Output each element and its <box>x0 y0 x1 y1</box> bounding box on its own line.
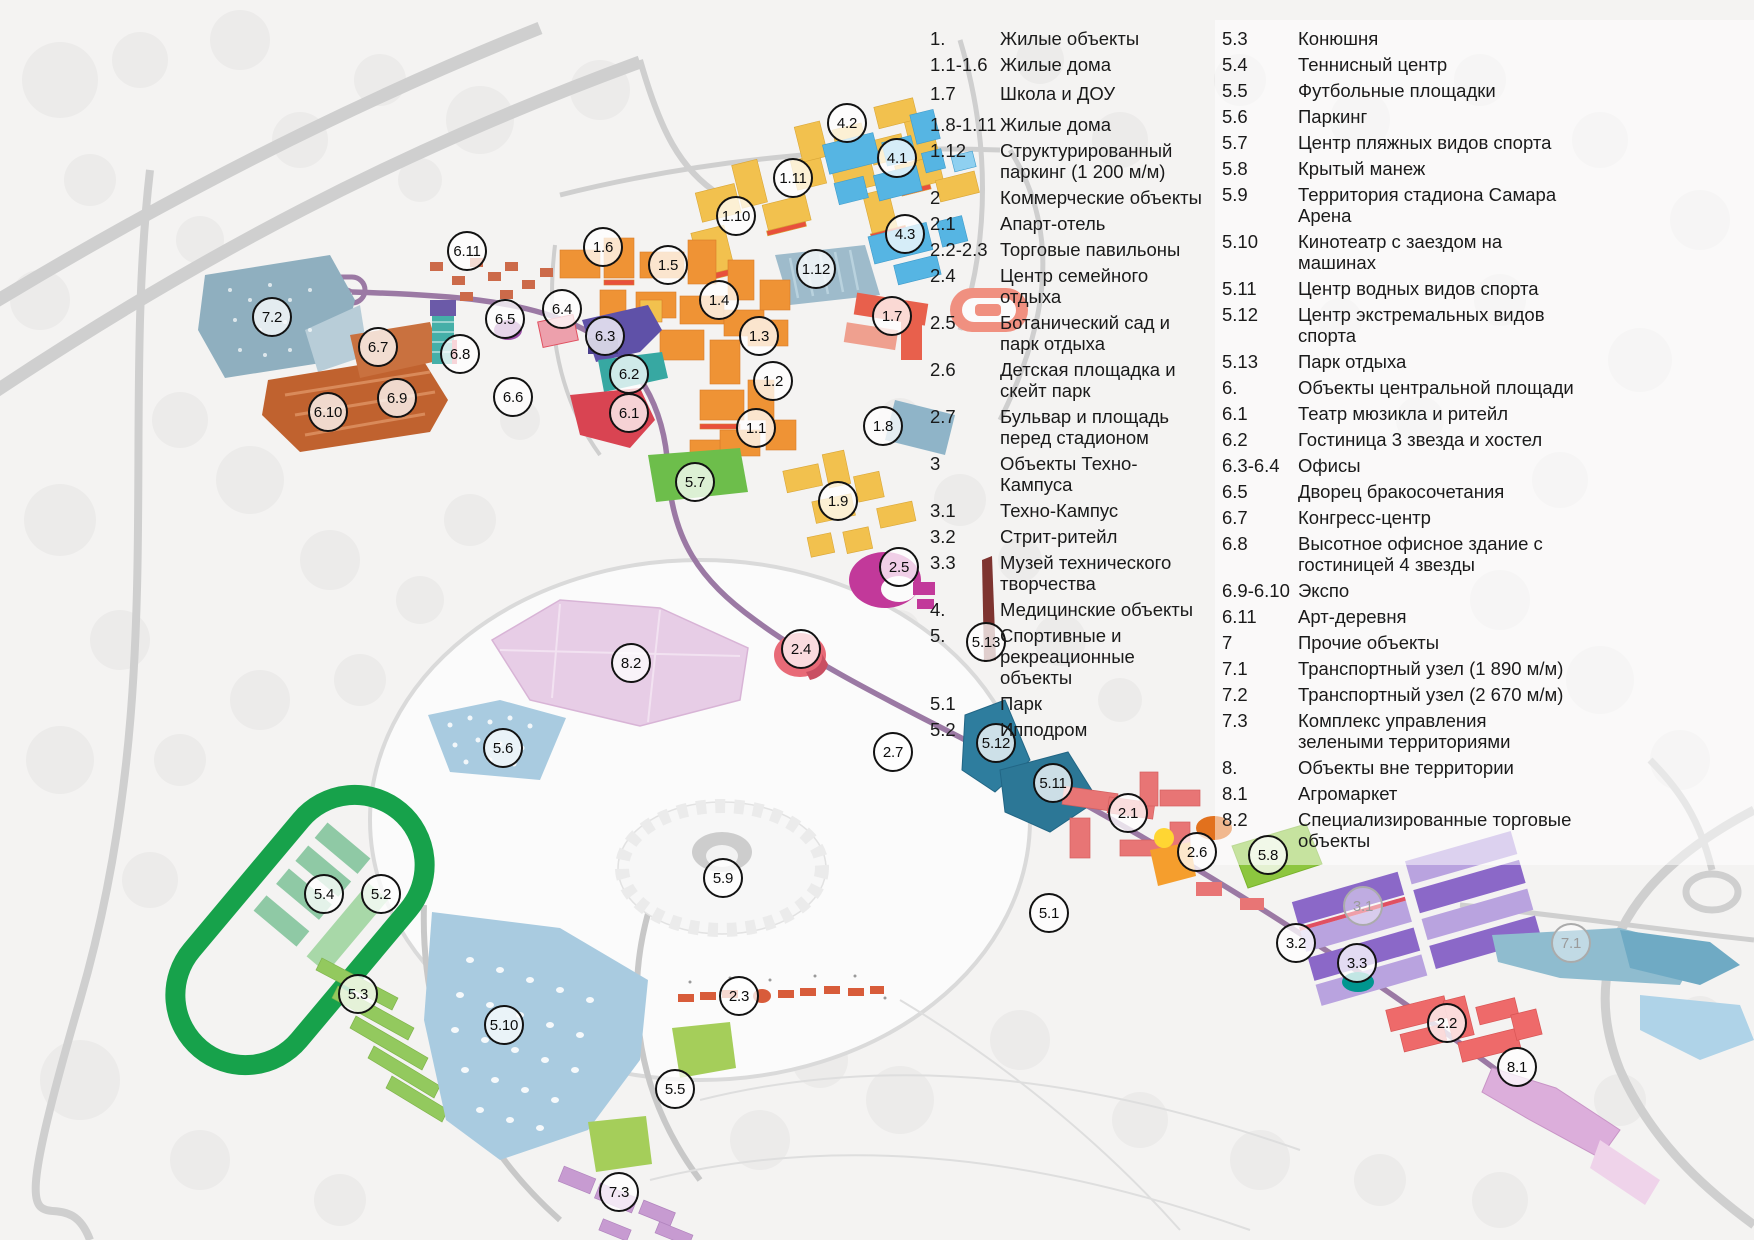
legend-row: 6.11Арт-деревня <box>1222 606 1582 627</box>
legend-number: 2.6 <box>930 359 1000 401</box>
legend-number: 1. <box>930 28 1000 49</box>
legend-label: Экспо <box>1298 580 1576 601</box>
map-marker-5.2[interactable]: 5.2 <box>361 874 401 914</box>
map-marker-1.7[interactable]: 1.7 <box>872 296 912 336</box>
legend-number: 5.11 <box>1222 278 1298 299</box>
legend-row: 6.9-6.10Экспо <box>1222 580 1582 601</box>
legend-row: 5.13Парк отдыха <box>1222 351 1582 372</box>
legend-number: 6.5 <box>1222 481 1298 502</box>
legend-number: 6.8 <box>1222 533 1298 575</box>
map-marker-1.8[interactable]: 1.8 <box>863 406 903 446</box>
map-marker-5.6[interactable]: 5.6 <box>483 728 523 768</box>
masterplan-page: 4.24.11.111.104.31.66.111.51.121.46.47.2… <box>0 0 1754 1240</box>
legend-label: Жилые дома <box>1000 54 1204 75</box>
legend-number: 7.3 <box>1222 710 1298 752</box>
map-marker-1.11[interactable]: 1.11 <box>773 158 813 198</box>
legend-number: 2.1 <box>930 213 1000 234</box>
map-marker-2.6[interactable]: 2.6 <box>1177 832 1217 872</box>
legend-number: 5.12 <box>1222 304 1298 346</box>
legend-number: 5.13 <box>1222 351 1298 372</box>
legend-row: 5.2Ипподром <box>930 719 1210 740</box>
map-marker-5.4[interactable]: 5.4 <box>304 874 344 914</box>
legend-row: 5.11Центр водных видов спорта <box>1222 278 1582 299</box>
legend-row: 2.4Центр семейного отдыха <box>930 265 1210 307</box>
legend-number: 5.10 <box>1222 231 1298 273</box>
legend-row: 6.2Гостиница 3 звезда и хостел <box>1222 429 1582 450</box>
legend-label: Школа и ДОУ <box>1000 83 1204 104</box>
legend-label: Прочие объекты <box>1298 632 1576 653</box>
legend-number: 5.1 <box>930 693 1000 714</box>
legend-label: Коммерческие объекты <box>1000 187 1204 208</box>
map-marker-1.6[interactable]: 1.6 <box>583 227 623 267</box>
legend-row: 1.8-1.11Жилые дома <box>930 114 1210 135</box>
legend-row: 1.7Школа и ДОУ <box>930 83 1210 104</box>
legend-label: Торговые павильоны <box>1000 239 1204 260</box>
map-marker-1.4[interactable]: 1.4 <box>699 280 739 320</box>
legend-label: Медицинские объекты <box>1000 599 1204 620</box>
legend-row: 6.3-6.4Офисы <box>1222 455 1582 476</box>
legend-row: 5.12Центр экстремальных видов спорта <box>1222 304 1582 346</box>
map-marker-2.3[interactable]: 2.3 <box>719 976 759 1016</box>
legend-row: 7.2Транспортный узел (2 670 м/м) <box>1222 684 1582 705</box>
map-marker-2.5[interactable]: 2.5 <box>879 547 919 587</box>
legend-row: 5.5Футбольные площадки <box>1222 80 1582 101</box>
legend-label: Транспортный узел (1 890 м/м) <box>1298 658 1576 679</box>
legend-row: 2.5Ботанический сад и парк отдыха <box>930 312 1210 354</box>
legend-row: 2.1Апарт-отель <box>930 213 1210 234</box>
map-marker-2.2[interactable]: 2.2 <box>1427 1003 1467 1043</box>
legend-label: Детская площадка и скейт парк <box>1000 359 1204 401</box>
legend-number: 5.2 <box>930 719 1000 740</box>
map-marker-6.7[interactable]: 6.7 <box>358 327 398 367</box>
legend-number: 2 <box>930 187 1000 208</box>
legend-label: Апарт-отель <box>1000 213 1204 234</box>
map-marker-1.5[interactable]: 1.5 <box>648 245 688 285</box>
legend-row: 6.Объекты центральной площади <box>1222 377 1582 398</box>
legend-label: Центр экстремальных видов спорта <box>1298 304 1576 346</box>
legend-row: 3.2Стрит-ритейл <box>930 526 1210 547</box>
map-marker-5.9[interactable]: 5.9 <box>703 858 743 898</box>
legend-label: Дворец бракосочетания <box>1298 481 1576 502</box>
legend-label: Кинотеатр с заездом на машинах <box>1298 231 1576 273</box>
map-marker-6.1[interactable]: 6.1 <box>609 393 649 433</box>
map-marker-8.1[interactable]: 8.1 <box>1497 1047 1537 1087</box>
legend-number: 7.1 <box>1222 658 1298 679</box>
legend-number: 8. <box>1222 757 1298 778</box>
legend-number: 1.7 <box>930 83 1000 104</box>
legend-number: 3.3 <box>930 552 1000 594</box>
legend-number: 5. <box>930 625 1000 688</box>
map-marker-3.2[interactable]: 3.2 <box>1276 923 1316 963</box>
legend-label: Теннисный центр <box>1298 54 1576 75</box>
map-marker-6.9[interactable]: 6.9 <box>377 378 417 418</box>
legend-row: 6.5Дворец бракосочетания <box>1222 481 1582 502</box>
legend-label: Конюшня <box>1298 28 1576 49</box>
legend-label: Паркинг <box>1298 106 1576 127</box>
map-marker-3.3[interactable]: 3.3 <box>1337 943 1377 983</box>
legend-number: 6.2 <box>1222 429 1298 450</box>
legend-number: 6.1 <box>1222 403 1298 424</box>
map-marker-7.2[interactable]: 7.2 <box>252 297 292 337</box>
legend-label: Парк <box>1000 693 1204 714</box>
map-marker-1.3[interactable]: 1.3 <box>739 316 779 356</box>
legend-row: 7.1Транспортный узел (1 890 м/м) <box>1222 658 1582 679</box>
legend-label: Офисы <box>1298 455 1576 476</box>
map-marker-6.4[interactable]: 6.4 <box>542 289 582 329</box>
map-marker-5.3[interactable]: 5.3 <box>338 974 378 1014</box>
map-marker-4.2[interactable]: 4.2 <box>827 103 867 143</box>
legend-number: 5.5 <box>1222 80 1298 101</box>
legend-number: 2.7 <box>930 406 1000 448</box>
legend-label: Жилые дома <box>1000 114 1204 135</box>
legend-number: 5.4 <box>1222 54 1298 75</box>
legend-label: Высотное офисное здание с гостиницей 4 з… <box>1298 533 1576 575</box>
legend-number: 6.7 <box>1222 507 1298 528</box>
legend-number: 6.11 <box>1222 606 1298 627</box>
legend-row: 8.2Специализированные торговые объекты <box>1222 809 1582 851</box>
legend-label: Комплекс управления зелеными территориям… <box>1298 710 1576 752</box>
legend-row: 5.7Центр пляжных видов спорта <box>1222 132 1582 153</box>
legend-number: 5.7 <box>1222 132 1298 153</box>
legend-row: 2.7Бульвар и площадь перед стадионом <box>930 406 1210 448</box>
legend-row: 6.1Театр мюзикла и ритейл <box>1222 403 1582 424</box>
legend-label: Парк отдыха <box>1298 351 1576 372</box>
legend-row: 5.3Конюшня <box>1222 28 1582 49</box>
legend-number: 1.8-1.11 <box>930 114 1000 135</box>
map-marker-2.7[interactable]: 2.7 <box>873 732 913 772</box>
map-marker-6.6[interactable]: 6.6 <box>493 377 533 417</box>
legend-label: Специализированные торговые объекты <box>1298 809 1576 851</box>
legend-number: 3.2 <box>930 526 1000 547</box>
map-marker-6.10[interactable]: 6.10 <box>308 392 348 432</box>
legend-row: 1.1-1.6Жилые дома <box>930 54 1210 75</box>
legend-row: 2Коммерческие объекты <box>930 187 1210 208</box>
legend-row: 5.1Парк <box>930 693 1210 714</box>
map-marker-6.8[interactable]: 6.8 <box>440 334 480 374</box>
map-marker-5.1[interactable]: 5.1 <box>1029 893 1069 933</box>
legend-row: 5.Спортивные и рекреационные объекты <box>930 625 1210 688</box>
legend-number: 5.3 <box>1222 28 1298 49</box>
legend-label: Транспортный узел (2 670 м/м) <box>1298 684 1576 705</box>
legend-row: 3.3Музей технического творчества <box>930 552 1210 594</box>
legend-label: Крытый манеж <box>1298 158 1576 179</box>
map-marker-5.7[interactable]: 5.7 <box>675 462 715 502</box>
map-marker-6.2[interactable]: 6.2 <box>609 354 649 394</box>
legend-number: 5.6 <box>1222 106 1298 127</box>
map-marker-6.5[interactable]: 6.5 <box>485 299 525 339</box>
legend-label: Центр семейного отдыха <box>1000 265 1204 307</box>
legend-number: 2.4 <box>930 265 1000 307</box>
legend-number: 5.9 <box>1222 184 1298 226</box>
map-marker-8.2[interactable]: 8.2 <box>611 643 651 683</box>
legend-label: Конгресс-центр <box>1298 507 1576 528</box>
map-marker-5.10[interactable]: 5.10 <box>484 1005 524 1045</box>
map-marker-2.1[interactable]: 2.1 <box>1108 793 1148 833</box>
legend-label: Объекты Техно-Кампуса <box>1000 453 1204 495</box>
legend-number: 2.5 <box>930 312 1000 354</box>
legend-row: 1.12Структурированный паркинг (1 200 м/м… <box>930 140 1210 182</box>
map-marker-7.1[interactable]: 7.1 <box>1551 923 1591 963</box>
legend-label: Арт-деревня <box>1298 606 1576 627</box>
legend-number: 3 <box>930 453 1000 495</box>
legend-row: 3Объекты Техно-Кампуса <box>930 453 1210 495</box>
legend-column-1: 1.Жилые объекты1.1-1.6Жилые дома1.7Школа… <box>930 28 1210 745</box>
legend-row: 5.10Кинотеатр с заездом на машинах <box>1222 231 1582 273</box>
legend-column-2: 5.3Конюшня5.4Теннисный центр5.5Футбольны… <box>1222 28 1582 856</box>
map-marker-4.3[interactable]: 4.3 <box>885 214 925 254</box>
legend-label: Структурированный паркинг (1 200 м/м) <box>1000 140 1204 182</box>
legend-row: 7.3Комплекс управления зелеными территор… <box>1222 710 1582 752</box>
legend-label: Ботанический сад и парк отдыха <box>1000 312 1204 354</box>
legend-label: Футбольные площадки <box>1298 80 1576 101</box>
map-marker-6.11[interactable]: 6.11 <box>447 231 487 271</box>
legend-number: 8.2 <box>1222 809 1298 851</box>
legend-number: 6.9-6.10 <box>1222 580 1298 601</box>
legend-number: 8.1 <box>1222 783 1298 804</box>
map-marker-1.1[interactable]: 1.1 <box>736 408 776 448</box>
legend-number: 1.1-1.6 <box>930 54 1000 75</box>
legend-row: 2.6Детская площадка и скейт парк <box>930 359 1210 401</box>
map-marker-3.1[interactable]: 3.1 <box>1343 886 1383 926</box>
map-marker-4.1[interactable]: 4.1 <box>877 138 917 178</box>
map-marker-1.9[interactable]: 1.9 <box>818 481 858 521</box>
map-marker-1.2[interactable]: 1.2 <box>753 361 793 401</box>
legend-row: 6.7Конгресс-центр <box>1222 507 1582 528</box>
legend-label: Музей технического творчества <box>1000 552 1204 594</box>
map-marker-5.5[interactable]: 5.5 <box>655 1069 695 1109</box>
map-marker-5.11[interactable]: 5.11 <box>1033 763 1073 803</box>
map-marker-1.10[interactable]: 1.10 <box>716 196 756 236</box>
legend-number: 7.2 <box>1222 684 1298 705</box>
legend-label: Агромаркет <box>1298 783 1576 804</box>
legend-row: 2.2-2.3Торговые павильоны <box>930 239 1210 260</box>
legend-row: 3.1Техно-Кампус <box>930 500 1210 521</box>
legend-label: Стрит-ритейл <box>1000 526 1204 547</box>
legend-row: 6.8Высотное офисное здание с гостиницей … <box>1222 533 1582 575</box>
legend-number: 3.1 <box>930 500 1000 521</box>
legend-row: 8.Объекты вне территории <box>1222 757 1582 778</box>
legend-label: Объекты вне территории <box>1298 757 1576 778</box>
legend-row: 8.1Агромаркет <box>1222 783 1582 804</box>
legend-row: 5.8Крытый манеж <box>1222 158 1582 179</box>
legend-row: 4.Медицинские объекты <box>930 599 1210 620</box>
legend-number: 1.12 <box>930 140 1000 182</box>
legend-label: Ипподром <box>1000 719 1204 740</box>
legend-label: Техно-Кампус <box>1000 500 1204 521</box>
legend-label: Жилые объекты <box>1000 28 1204 49</box>
legend-label: Гостиница 3 звезда и хостел <box>1298 429 1576 450</box>
legend-row: 7Прочие объекты <box>1222 632 1582 653</box>
legend-row: 1.Жилые объекты <box>930 28 1210 49</box>
map-marker-6.3[interactable]: 6.3 <box>585 316 625 356</box>
legend-label: Центр водных видов спорта <box>1298 278 1576 299</box>
legend-label: Центр пляжных видов спорта <box>1298 132 1576 153</box>
legend-number: 5.8 <box>1222 158 1298 179</box>
legend-number: 4. <box>930 599 1000 620</box>
legend-label: Объекты центральной площади <box>1298 377 1576 398</box>
legend-number: 2.2-2.3 <box>930 239 1000 260</box>
legend-row: 5.6Паркинг <box>1222 106 1582 127</box>
legend-label: Спортивные и рекреационные объекты <box>1000 625 1204 688</box>
map-marker-1.12[interactable]: 1.12 <box>796 249 836 289</box>
legend-row: 5.9Территория стадиона Самара Арена <box>1222 184 1582 226</box>
legend-label: Театр мюзикла и ритейл <box>1298 403 1576 424</box>
legend-number: 7 <box>1222 632 1298 653</box>
legend-number: 6. <box>1222 377 1298 398</box>
legend-row: 5.4Теннисный центр <box>1222 54 1582 75</box>
map-marker-2.4[interactable]: 2.4 <box>781 629 821 669</box>
legend-label: Бульвар и площадь перед стадионом <box>1000 406 1204 448</box>
legend-label: Территория стадиона Самара Арена <box>1298 184 1576 226</box>
map-marker-7.3[interactable]: 7.3 <box>599 1172 639 1212</box>
legend-number: 6.3-6.4 <box>1222 455 1298 476</box>
